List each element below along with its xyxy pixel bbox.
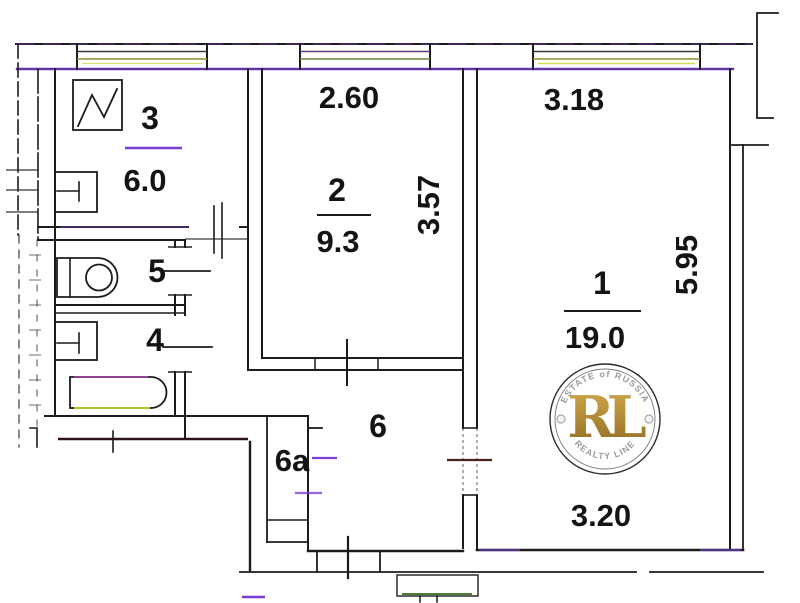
room6a-number: 6a	[275, 443, 310, 478]
room3-number: 3	[141, 100, 159, 136]
watermark-left-dot	[557, 415, 565, 423]
top-exterior-wall	[16, 44, 752, 69]
balcony-bracket	[732, 13, 778, 145]
dim-room2-depth: 3.57	[411, 175, 446, 235]
kitchen-door-tick	[214, 203, 222, 258]
room2-area: 9.3	[316, 224, 359, 259]
room4-number: 4	[146, 322, 164, 358]
window-kitchen	[77, 44, 207, 69]
room1-left-wall	[447, 69, 492, 548]
room2-number: 2	[328, 172, 346, 208]
watermark-monogram: RL	[567, 384, 645, 451]
kitchen-sink-icon	[55, 172, 97, 212]
door-jamb-ticks	[168, 247, 192, 372]
stove-icon	[73, 80, 122, 130]
toilet-icon	[57, 258, 118, 297]
dim-room1-width-bottom: 3.20	[571, 498, 631, 533]
watermark-stamp: ESTATE of RUSSIA REALTY LINE RL	[550, 364, 660, 474]
wall-hatch-ticks	[6, 170, 41, 405]
room1-area: 19.0	[565, 320, 625, 355]
left-exterior-wall	[6, 44, 41, 447]
bathtub-icon	[70, 377, 166, 408]
window-room2	[300, 44, 430, 69]
dim-room1-width: 3.18	[544, 82, 604, 117]
room1-number: 1	[593, 265, 611, 301]
closet-walls	[267, 416, 337, 551]
room1-walls	[477, 69, 743, 550]
room6-number: 6	[369, 408, 387, 444]
dim-room1-depth: 5.95	[669, 235, 704, 295]
entrance-step	[397, 575, 478, 596]
bathroom-sink-icon	[55, 322, 97, 360]
dim-room2-width: 2.60	[319, 80, 379, 115]
watermark-right-dot	[645, 415, 653, 423]
floor-plan-page: 2.60 3.18 3.57 5.95 3.20 3 6.0 2 9.3 1 1…	[0, 0, 800, 603]
entrance-walls	[240, 537, 763, 602]
room3-area: 6.0	[123, 163, 166, 198]
lower-left-boundary	[30, 428, 250, 570]
floor-plan: 2.60 3.18 3.57 5.95 3.20 3 6.0 2 9.3 1 1…	[0, 0, 800, 603]
window-room1	[533, 44, 700, 69]
